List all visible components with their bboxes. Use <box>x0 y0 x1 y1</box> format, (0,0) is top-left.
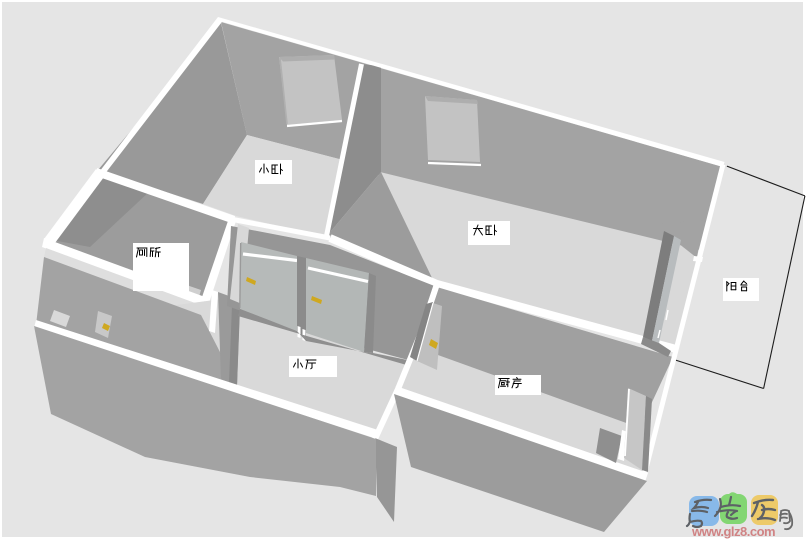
svg-text:www.glz8.com: www.glz8.com <box>691 524 775 539</box>
